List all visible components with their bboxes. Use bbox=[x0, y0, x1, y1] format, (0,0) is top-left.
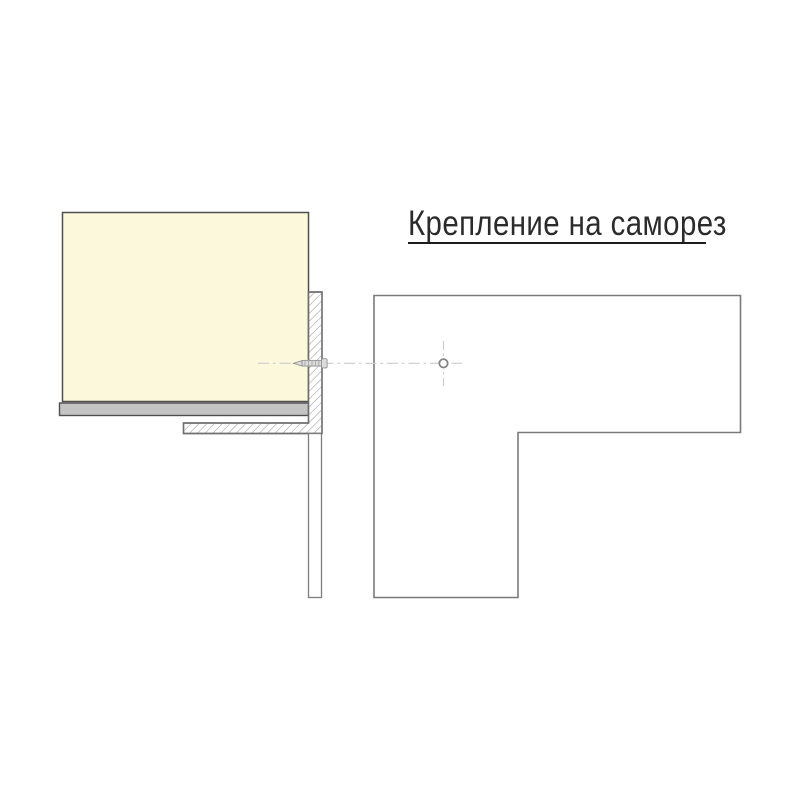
corner-panel-plan bbox=[374, 296, 741, 598]
edge-strip bbox=[60, 403, 309, 416]
screw-hole-marker bbox=[439, 359, 447, 367]
vertical-strip-lower bbox=[309, 434, 322, 598]
panel-section bbox=[63, 213, 309, 402]
drawing-canvas: Крепление на саморез bbox=[0, 0, 800, 800]
assembly-drawing bbox=[0, 0, 800, 800]
screw-head bbox=[322, 359, 328, 368]
